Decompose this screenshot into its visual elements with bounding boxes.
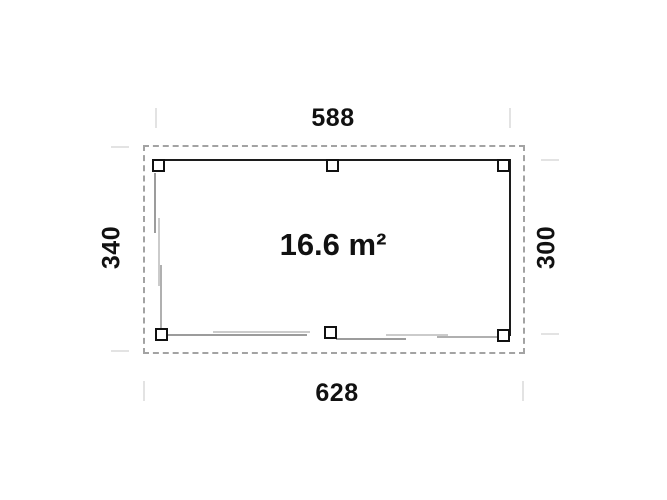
sliding-door-line	[437, 336, 497, 338]
dimension-bottom: 628	[143, 381, 531, 406]
sliding-door-line	[213, 331, 310, 333]
sliding-door-line	[165, 334, 307, 336]
post-bottom-right	[497, 329, 510, 342]
post-top-left	[152, 159, 165, 172]
post-bottom-left	[155, 328, 168, 341]
post-top-middle	[326, 159, 339, 172]
extension-tick	[111, 146, 129, 148]
dimension-right: 300	[535, 210, 560, 286]
sliding-door-line	[336, 338, 406, 340]
sliding-door-line	[154, 173, 156, 233]
extension-tick	[111, 350, 129, 352]
post-top-right	[497, 159, 510, 172]
dimension-top: 588	[143, 106, 523, 131]
post-bottom-middle	[324, 326, 337, 339]
sliding-door-line	[160, 265, 162, 329]
floor-plan: 588 628 340 300 16.6 m²	[0, 0, 667, 500]
extension-tick	[541, 159, 559, 161]
dimension-left: 340	[100, 210, 125, 286]
area-label: 16.6 m²	[155, 229, 511, 260]
extension-tick	[541, 333, 559, 335]
